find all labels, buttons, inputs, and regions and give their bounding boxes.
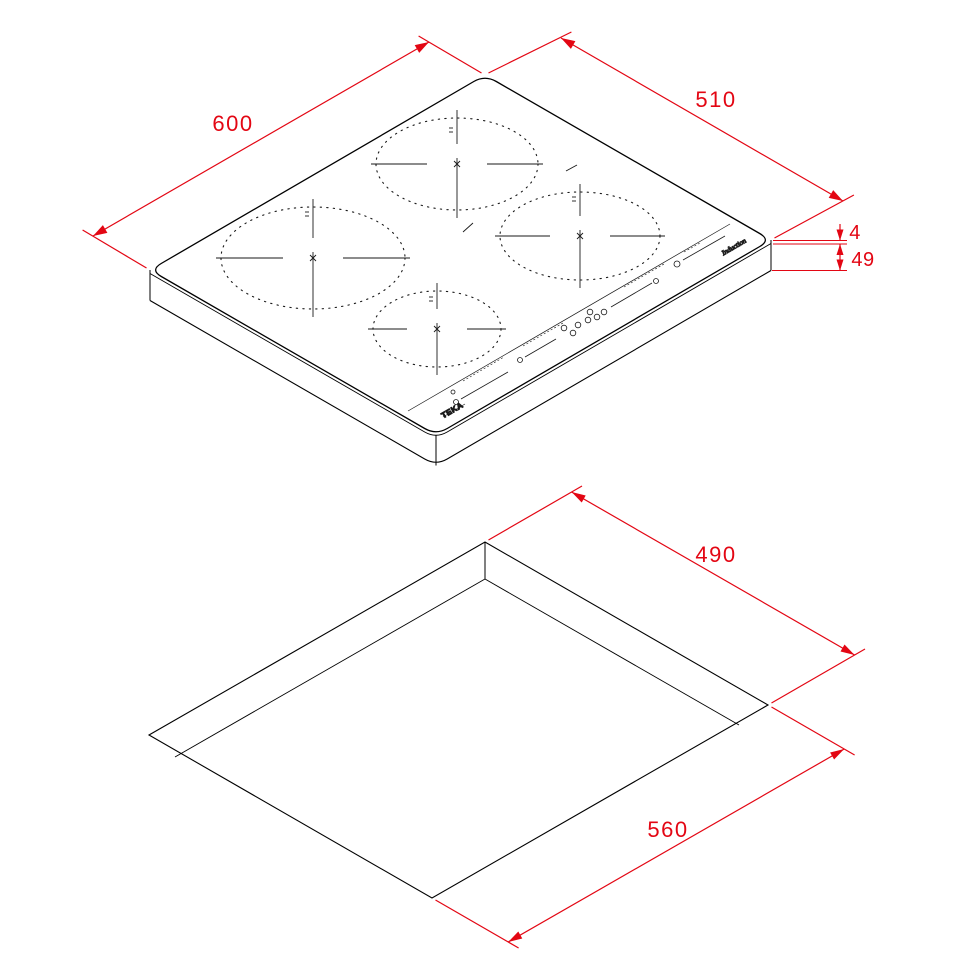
extension-line bbox=[772, 707, 855, 755]
arrowhead bbox=[415, 42, 429, 53]
control-panel: TEKA Induction bbox=[408, 224, 748, 420]
drawing-line bbox=[594, 314, 600, 320]
dim-560: 560 bbox=[436, 707, 855, 948]
dimension-line bbox=[508, 749, 844, 942]
flex-bridge-mark bbox=[463, 223, 473, 232]
extension-line bbox=[419, 36, 482, 73]
panel-micro-text bbox=[523, 323, 563, 346]
dimension-line bbox=[572, 492, 855, 655]
timer-button-icon bbox=[674, 261, 680, 267]
cutout-rim bbox=[149, 542, 768, 898]
dim-510: 510 bbox=[489, 32, 854, 238]
slider-knob-icon bbox=[518, 358, 523, 363]
arrowhead bbox=[508, 932, 522, 943]
series-script-label: Induction bbox=[720, 237, 749, 258]
arrowhead bbox=[830, 749, 844, 760]
extension-line bbox=[489, 486, 583, 540]
arrowhead bbox=[572, 492, 586, 503]
arrowhead bbox=[837, 230, 844, 241]
arrowhead bbox=[837, 260, 844, 271]
slider-track bbox=[611, 283, 652, 307]
extension-line bbox=[772, 649, 866, 703]
cutout-inner-wall-bottom-left bbox=[175, 579, 485, 757]
power-button-icon bbox=[451, 390, 455, 394]
dim-49: 49 bbox=[772, 244, 875, 271]
dim-600: 600 bbox=[83, 36, 482, 268]
zone-crosshair bbox=[368, 283, 506, 375]
arrowhead bbox=[93, 225, 107, 236]
extension-line bbox=[489, 32, 572, 73]
drawing-line bbox=[587, 309, 593, 315]
dim-510-label: 510 bbox=[695, 87, 736, 112]
dim-490-label: 490 bbox=[695, 542, 736, 567]
zone-crosshair bbox=[495, 184, 665, 288]
dim-600-label: 600 bbox=[212, 111, 253, 136]
cooking-zone-front bbox=[368, 283, 506, 375]
technical-drawing: TEKA Induction bbox=[0, 0, 967, 967]
panel-button-cluster bbox=[561, 309, 607, 336]
panel-border-line bbox=[408, 224, 730, 411]
hob-body-bottom-edge bbox=[150, 271, 771, 463]
dim-4-label: 4 bbox=[849, 222, 861, 244]
dim-49-label: 49 bbox=[851, 249, 874, 271]
drawing-line bbox=[585, 317, 591, 323]
teka-logo: TEKA bbox=[440, 401, 465, 421]
drawing-line bbox=[561, 325, 567, 331]
drawing-canvas: TEKA Induction bbox=[0, 0, 967, 967]
cutout-inner-wall-bottom-right bbox=[485, 579, 739, 725]
slider-knob-icon bbox=[654, 279, 659, 284]
dim-4: 4 bbox=[773, 222, 861, 244]
extension-line bbox=[83, 230, 147, 268]
drawing-line bbox=[570, 330, 576, 336]
dim-490: 490 bbox=[489, 486, 866, 703]
drawing-line bbox=[575, 322, 581, 328]
arrowhead bbox=[561, 38, 575, 49]
hob-top-view: TEKA Induction bbox=[83, 32, 875, 466]
dimension-line bbox=[561, 38, 843, 201]
arrowhead bbox=[837, 244, 844, 255]
dimension-line bbox=[93, 42, 429, 236]
panel-micro-text bbox=[684, 243, 700, 252]
panel-micro-text bbox=[624, 264, 664, 287]
cooking-zones bbox=[216, 110, 665, 375]
slider-track bbox=[525, 339, 556, 357]
flex-bridge-mark bbox=[566, 165, 577, 171]
extension-line bbox=[436, 900, 519, 948]
cutout-bottom-view: 490 560 bbox=[149, 486, 865, 948]
cooking-zone-left bbox=[216, 199, 410, 317]
dim-560-label: 560 bbox=[647, 817, 688, 842]
zone-crosshair bbox=[216, 199, 410, 317]
arrowhead bbox=[829, 190, 843, 201]
drawing-line bbox=[601, 309, 607, 315]
cooking-zone-right bbox=[495, 184, 665, 288]
arrowhead bbox=[841, 645, 855, 656]
